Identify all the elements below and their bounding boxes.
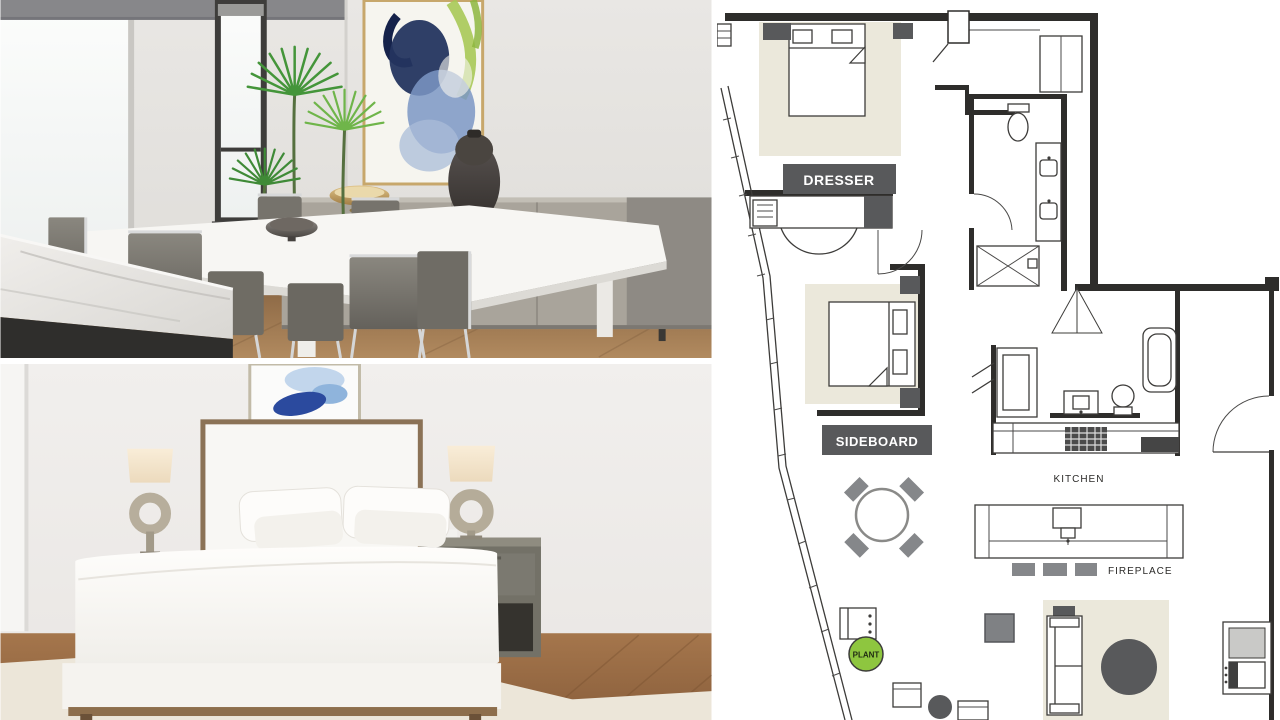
plant-label-text: PLANT — [853, 651, 880, 660]
appliance-symbol — [1141, 437, 1179, 452]
bed-symbol-master — [789, 24, 865, 116]
sofa-pillow — [1053, 606, 1075, 616]
toilet-symbol — [1112, 385, 1134, 415]
shower-symbol — [977, 246, 1039, 286]
floor-plan: DRESSER — [717, 0, 1280, 720]
vanity-symbol — [1036, 143, 1061, 241]
kitchen-label: KITCHEN — [1054, 474, 1105, 485]
kitchen-counter — [993, 423, 1179, 453]
roller-shade-small — [218, 4, 264, 16]
window — [0, 364, 26, 631]
nightstand-symbol — [900, 276, 920, 294]
media-console-symbol — [1223, 622, 1271, 694]
dresser-label-text: DRESSER — [803, 172, 874, 188]
ottoman-symbol — [928, 695, 952, 719]
dining-room-photo — [0, 0, 712, 358]
kitchen-island-symbol — [975, 505, 1183, 558]
bathtub-symbol — [1143, 328, 1176, 392]
armchair-symbol — [840, 608, 876, 639]
bed-base — [62, 663, 501, 709]
stove-symbol — [1065, 427, 1107, 451]
nightstand-symbol — [900, 388, 920, 408]
roller-shade — [0, 0, 347, 19]
round-coffee-table-symbol — [1101, 639, 1157, 695]
sofa-symbol — [1047, 606, 1082, 715]
dining-room-scene — [0, 0, 712, 358]
fireplace-label: FIREPLACE — [1108, 566, 1173, 577]
plant-symbol: PLANT — [849, 637, 883, 671]
mattress-duvet — [75, 547, 499, 683]
toilet-symbol — [1008, 104, 1029, 141]
bedroom-photo — [0, 364, 712, 720]
closet-symbol — [1040, 36, 1082, 92]
bed-symbol-bedroom2 — [829, 302, 915, 386]
window-frame — [24, 364, 28, 631]
bed-wood-rail — [68, 707, 497, 716]
dresser-label: DRESSER — [783, 164, 896, 194]
wall-art — [250, 364, 360, 424]
cabinet-symbol — [997, 348, 1037, 417]
nightstand-symbol — [763, 23, 791, 40]
nightstand-symbol — [893, 23, 913, 39]
sink-symbol — [1064, 391, 1098, 414]
floor-plan-drawing: DRESSER — [717, 0, 1280, 720]
bar-stool-symbols — [1012, 563, 1097, 576]
sideboard-label-text: SIDEBOARD — [836, 434, 919, 449]
accent-table-symbol — [958, 701, 988, 720]
accent-table-symbol — [893, 683, 921, 707]
sideboard-label: SIDEBOARD — [822, 425, 932, 455]
pillow — [354, 509, 447, 548]
window-frame — [128, 0, 134, 265]
window-center — [212, 0, 270, 227]
roller-shade-edge — [0, 17, 347, 20]
side-table-symbol — [985, 614, 1014, 642]
bedroom-scene — [0, 364, 712, 720]
